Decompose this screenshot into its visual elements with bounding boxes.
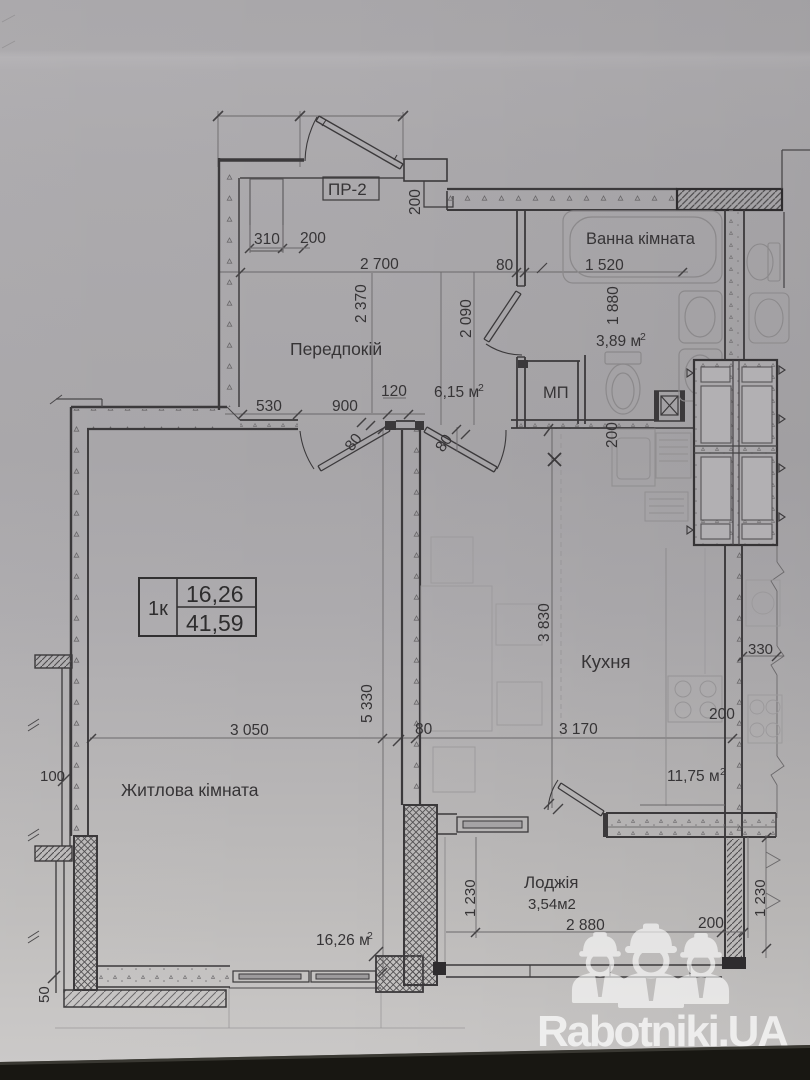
svg-text:ПР-2: ПР-2: [328, 180, 367, 199]
svg-text:6,15 м: 6,15 м: [434, 384, 479, 401]
svg-text:1 880: 1 880: [605, 286, 622, 325]
svg-text:2 370: 2 370: [353, 284, 370, 323]
svg-text:Ванна кімната: Ванна кімната: [586, 230, 696, 248]
svg-text:100: 100: [40, 768, 65, 785]
svg-text:50: 50: [36, 986, 53, 1003]
svg-text:Житлова кімната: Житлова кімната: [121, 780, 259, 800]
svg-text:120: 120: [381, 383, 407, 400]
svg-text:2 700: 2 700: [360, 256, 399, 273]
svg-text:3 050: 3 050: [230, 722, 269, 739]
svg-text:3,54м2: 3,54м2: [528, 896, 576, 913]
svg-text:11,75 м: 11,75 м: [667, 768, 720, 785]
svg-text:16,26: 16,26: [186, 581, 244, 607]
svg-text:Лоджія: Лоджія: [524, 873, 579, 892]
svg-text:200: 200: [407, 189, 424, 215]
svg-text:2 880: 2 880: [566, 917, 605, 934]
svg-text:200: 200: [709, 706, 735, 723]
svg-text:200: 200: [698, 915, 724, 932]
svg-text:41,59: 41,59: [186, 610, 244, 636]
svg-text:1 230: 1 230: [462, 879, 479, 917]
svg-text:200: 200: [604, 422, 621, 448]
svg-text:2: 2: [720, 766, 726, 778]
svg-text:310: 310: [254, 231, 280, 248]
svg-text:330: 330: [748, 641, 773, 658]
svg-text:1 520: 1 520: [585, 257, 624, 274]
svg-text:Кухня: Кухня: [581, 651, 631, 672]
svg-text:900: 900: [332, 398, 358, 415]
svg-text:200: 200: [300, 230, 326, 247]
svg-text:2: 2: [640, 331, 646, 343]
svg-text:2: 2: [367, 930, 373, 942]
svg-text:3 830: 3 830: [536, 603, 553, 642]
svg-text:2: 2: [478, 382, 484, 394]
svg-text:1 230: 1 230: [752, 879, 769, 917]
svg-text:5 330: 5 330: [359, 684, 376, 723]
svg-text:530: 530: [256, 398, 282, 415]
svg-text:80: 80: [432, 431, 456, 455]
svg-text:3 170: 3 170: [559, 721, 598, 738]
svg-text:1к: 1к: [148, 598, 168, 620]
svg-text:МП: МП: [543, 384, 569, 402]
svg-text:3,89 м: 3,89 м: [596, 333, 641, 350]
svg-text:2 090: 2 090: [458, 299, 475, 338]
svg-text:16,26 м: 16,26 м: [316, 932, 370, 949]
svg-text:80: 80: [415, 721, 433, 738]
svg-text:80: 80: [496, 257, 514, 274]
svg-text:Передпокій: Передпокій: [290, 339, 382, 359]
